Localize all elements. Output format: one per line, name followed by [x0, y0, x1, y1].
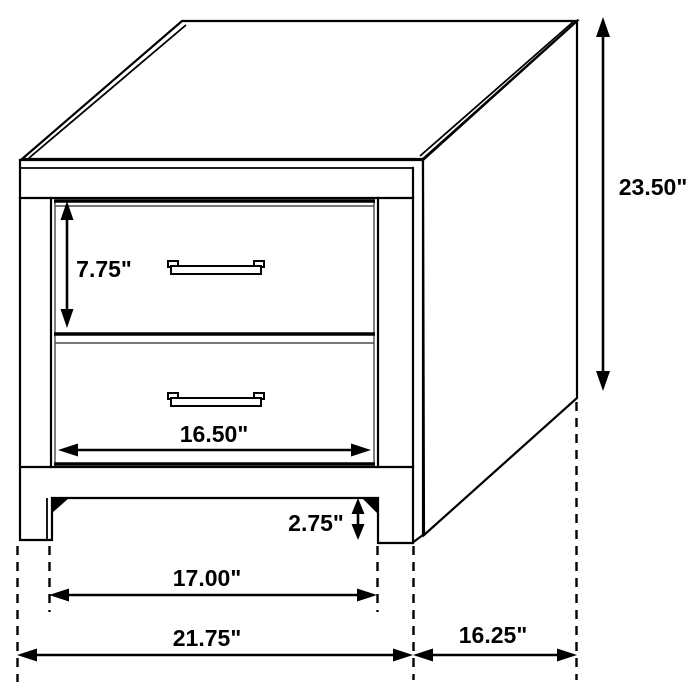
dimension-depth: 16.25": [413, 622, 577, 662]
dimension-base-height: 2.75": [288, 498, 364, 540]
left-leg-bracket: [52, 498, 69, 513]
arrowhead-right-icon: [557, 649, 577, 662]
arrowhead-up-icon: [596, 17, 610, 37]
dimension-overall-width: 21.75": [17, 625, 413, 662]
nightstand: [20, 21, 577, 543]
depth-label: 16.25": [459, 622, 527, 648]
dimension-overall-height: 23.50": [596, 17, 687, 391]
arrowhead-left-icon: [17, 649, 37, 662]
front-face: [20, 160, 423, 543]
nightstand-dimension-drawing: 23.50" 7.75" 16.50" 2.75" 17.00" 21.75": [0, 0, 700, 700]
right-leg-bracket: [362, 498, 378, 514]
arrowhead-down-icon: [352, 524, 365, 540]
top-drawer-height-label: 7.75": [76, 256, 132, 282]
base-height-label: 2.75": [288, 510, 344, 536]
overall-width-label: 21.75": [173, 625, 241, 651]
handle-bar: [171, 266, 261, 274]
drawer-front-width-label: 16.50": [180, 421, 248, 447]
arrowhead-up-icon: [352, 498, 365, 514]
diagram-canvas: 23.50" 7.75" 16.50" 2.75" 17.00" 21.75": [0, 0, 700, 700]
between-legs-width-label: 17.00": [173, 565, 241, 591]
arrowhead-right-icon: [357, 589, 377, 602]
overall-height-label: 23.50": [619, 174, 687, 200]
handle-bar: [171, 398, 261, 406]
dimension-between-legs-width: 17.00": [49, 565, 377, 602]
arrowhead-right-icon: [393, 649, 413, 662]
arrowhead-left-icon: [413, 649, 433, 662]
arrowhead-left-icon: [49, 589, 69, 602]
arrowhead-down-icon: [596, 371, 610, 391]
